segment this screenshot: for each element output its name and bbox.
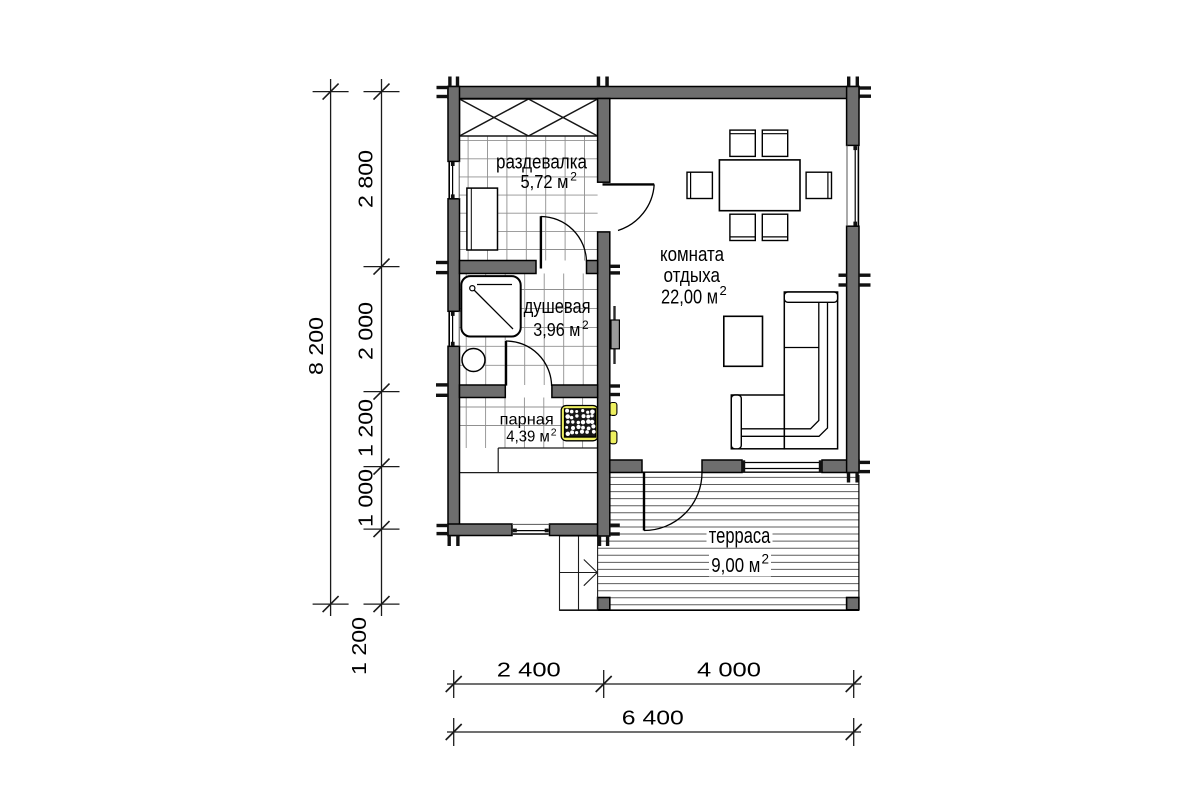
svg-text:5,72 м: 5,72 м xyxy=(521,172,569,192)
svg-text:1 000: 1 000 xyxy=(356,469,378,527)
svg-text:8 200: 8 200 xyxy=(306,317,328,375)
svg-text:1 200: 1 200 xyxy=(349,617,371,675)
svg-text:2 000: 2 000 xyxy=(356,302,378,360)
svg-text:4,39 м: 4,39 м xyxy=(506,429,550,446)
svg-text:1 200: 1 200 xyxy=(356,399,378,457)
svg-text:9,00 м: 9,00 м xyxy=(711,555,760,577)
svg-text:2: 2 xyxy=(570,170,577,184)
svg-text:2: 2 xyxy=(762,552,770,567)
svg-text:терраса: терраса xyxy=(709,523,771,548)
svg-text:2: 2 xyxy=(720,283,727,298)
svg-text:6 400: 6 400 xyxy=(622,708,684,730)
svg-text:4 000: 4 000 xyxy=(697,660,761,682)
svg-text:2 800: 2 800 xyxy=(356,150,378,208)
svg-text:отдыха: отдыха xyxy=(664,265,721,287)
svg-text:2: 2 xyxy=(582,318,589,332)
svg-text:2: 2 xyxy=(551,427,557,439)
svg-text:комната: комната xyxy=(660,244,725,266)
svg-text:душевая: душевая xyxy=(524,296,591,318)
svg-text:3,96 м: 3,96 м xyxy=(533,320,580,340)
svg-text:2 400: 2 400 xyxy=(497,660,561,682)
svg-text:парная: парная xyxy=(500,411,554,428)
svg-text:22,00 м: 22,00 м xyxy=(661,287,718,309)
